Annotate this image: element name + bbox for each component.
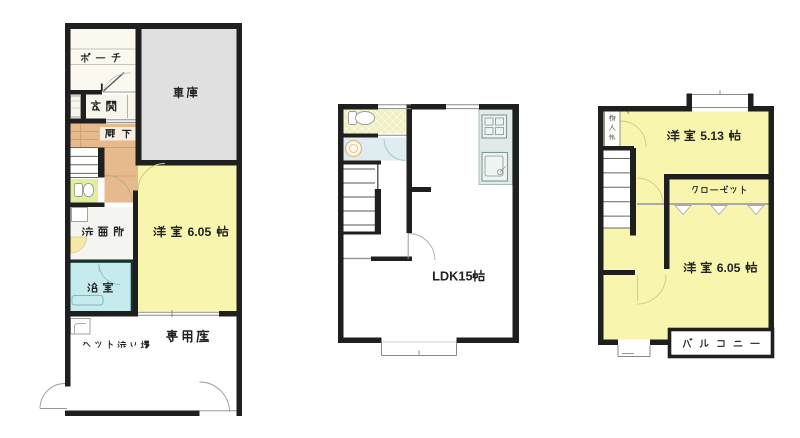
svg-text:5.13: 5.13	[700, 129, 724, 143]
svg-text:6.05: 6.05	[717, 261, 741, 275]
svg-text:LDK15: LDK15	[432, 269, 473, 284]
svg-text:6.05: 6.05	[188, 225, 212, 239]
